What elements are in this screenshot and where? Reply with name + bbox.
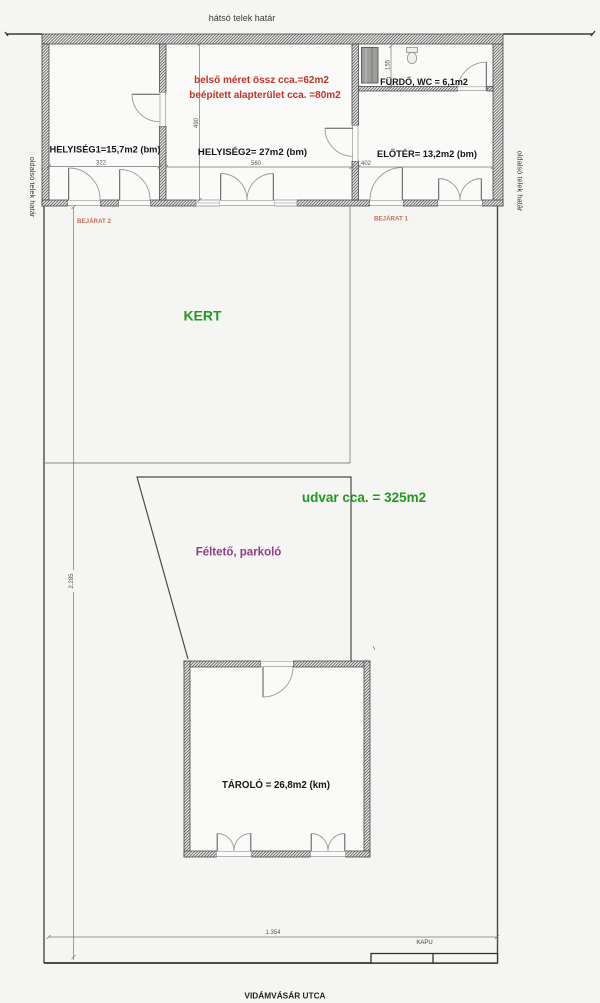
svg-text:322: 322 — [96, 161, 107, 167]
svg-text:2.285: 2.285 — [69, 573, 75, 589]
svg-text:BEJÁRAT 1: BEJÁRAT 1 — [374, 216, 408, 223]
svg-text:TÁROLÓ = 26,8m2 (km): TÁROLÓ = 26,8m2 (km) — [222, 779, 330, 791]
svg-text:560: 560 — [251, 161, 262, 167]
svg-text:Féltető, parkoló: Féltető, parkoló — [196, 547, 282, 559]
svg-text:belső méret össz cca.=62m2: belső méret össz cca.=62m2 — [194, 75, 329, 86]
svg-text:VIDÁMVÁSÁR UTCA: VIDÁMVÁSÁR UTCA — [244, 991, 325, 1001]
svg-text:490: 490 — [194, 117, 200, 128]
svg-text:KAPU: KAPU — [416, 940, 432, 946]
svg-text:ELŐTÉR= 13,2m2 (bm): ELŐTÉR= 13,2m2 (bm) — [377, 148, 477, 159]
svg-text:HELYISÉG1=15,7m2 (bm): HELYISÉG1=15,7m2 (bm) — [49, 145, 160, 155]
svg-text:402: 402 — [361, 161, 372, 167]
svg-text:udvar cca. = 325m2: udvar cca. = 325m2 — [302, 490, 426, 505]
svg-text:beépített alapterület cca. =80: beépített alapterület cca. =80m2 — [189, 90, 341, 101]
svg-text:oldalsó telek határ: oldalsó telek határ — [28, 157, 37, 218]
svg-text:KERT: KERT — [183, 308, 222, 324]
svg-text:BEJÁRAT 2: BEJÁRAT 2 — [77, 218, 111, 225]
svg-text:1.354: 1.354 — [265, 930, 281, 936]
svg-text:hátsó telek határ: hátsó telek határ — [209, 13, 276, 23]
svg-text:oldalsó telek határ: oldalsó telek határ — [516, 151, 525, 212]
svg-text:FÜRDŐ, WC = 6,1m2: FÜRDŐ, WC = 6,1m2 — [380, 76, 468, 87]
svg-text:155: 155 — [386, 59, 392, 70]
svg-text:HELYISÉG2= 27m2 (bm): HELYISÉG2= 27m2 (bm) — [198, 146, 307, 158]
